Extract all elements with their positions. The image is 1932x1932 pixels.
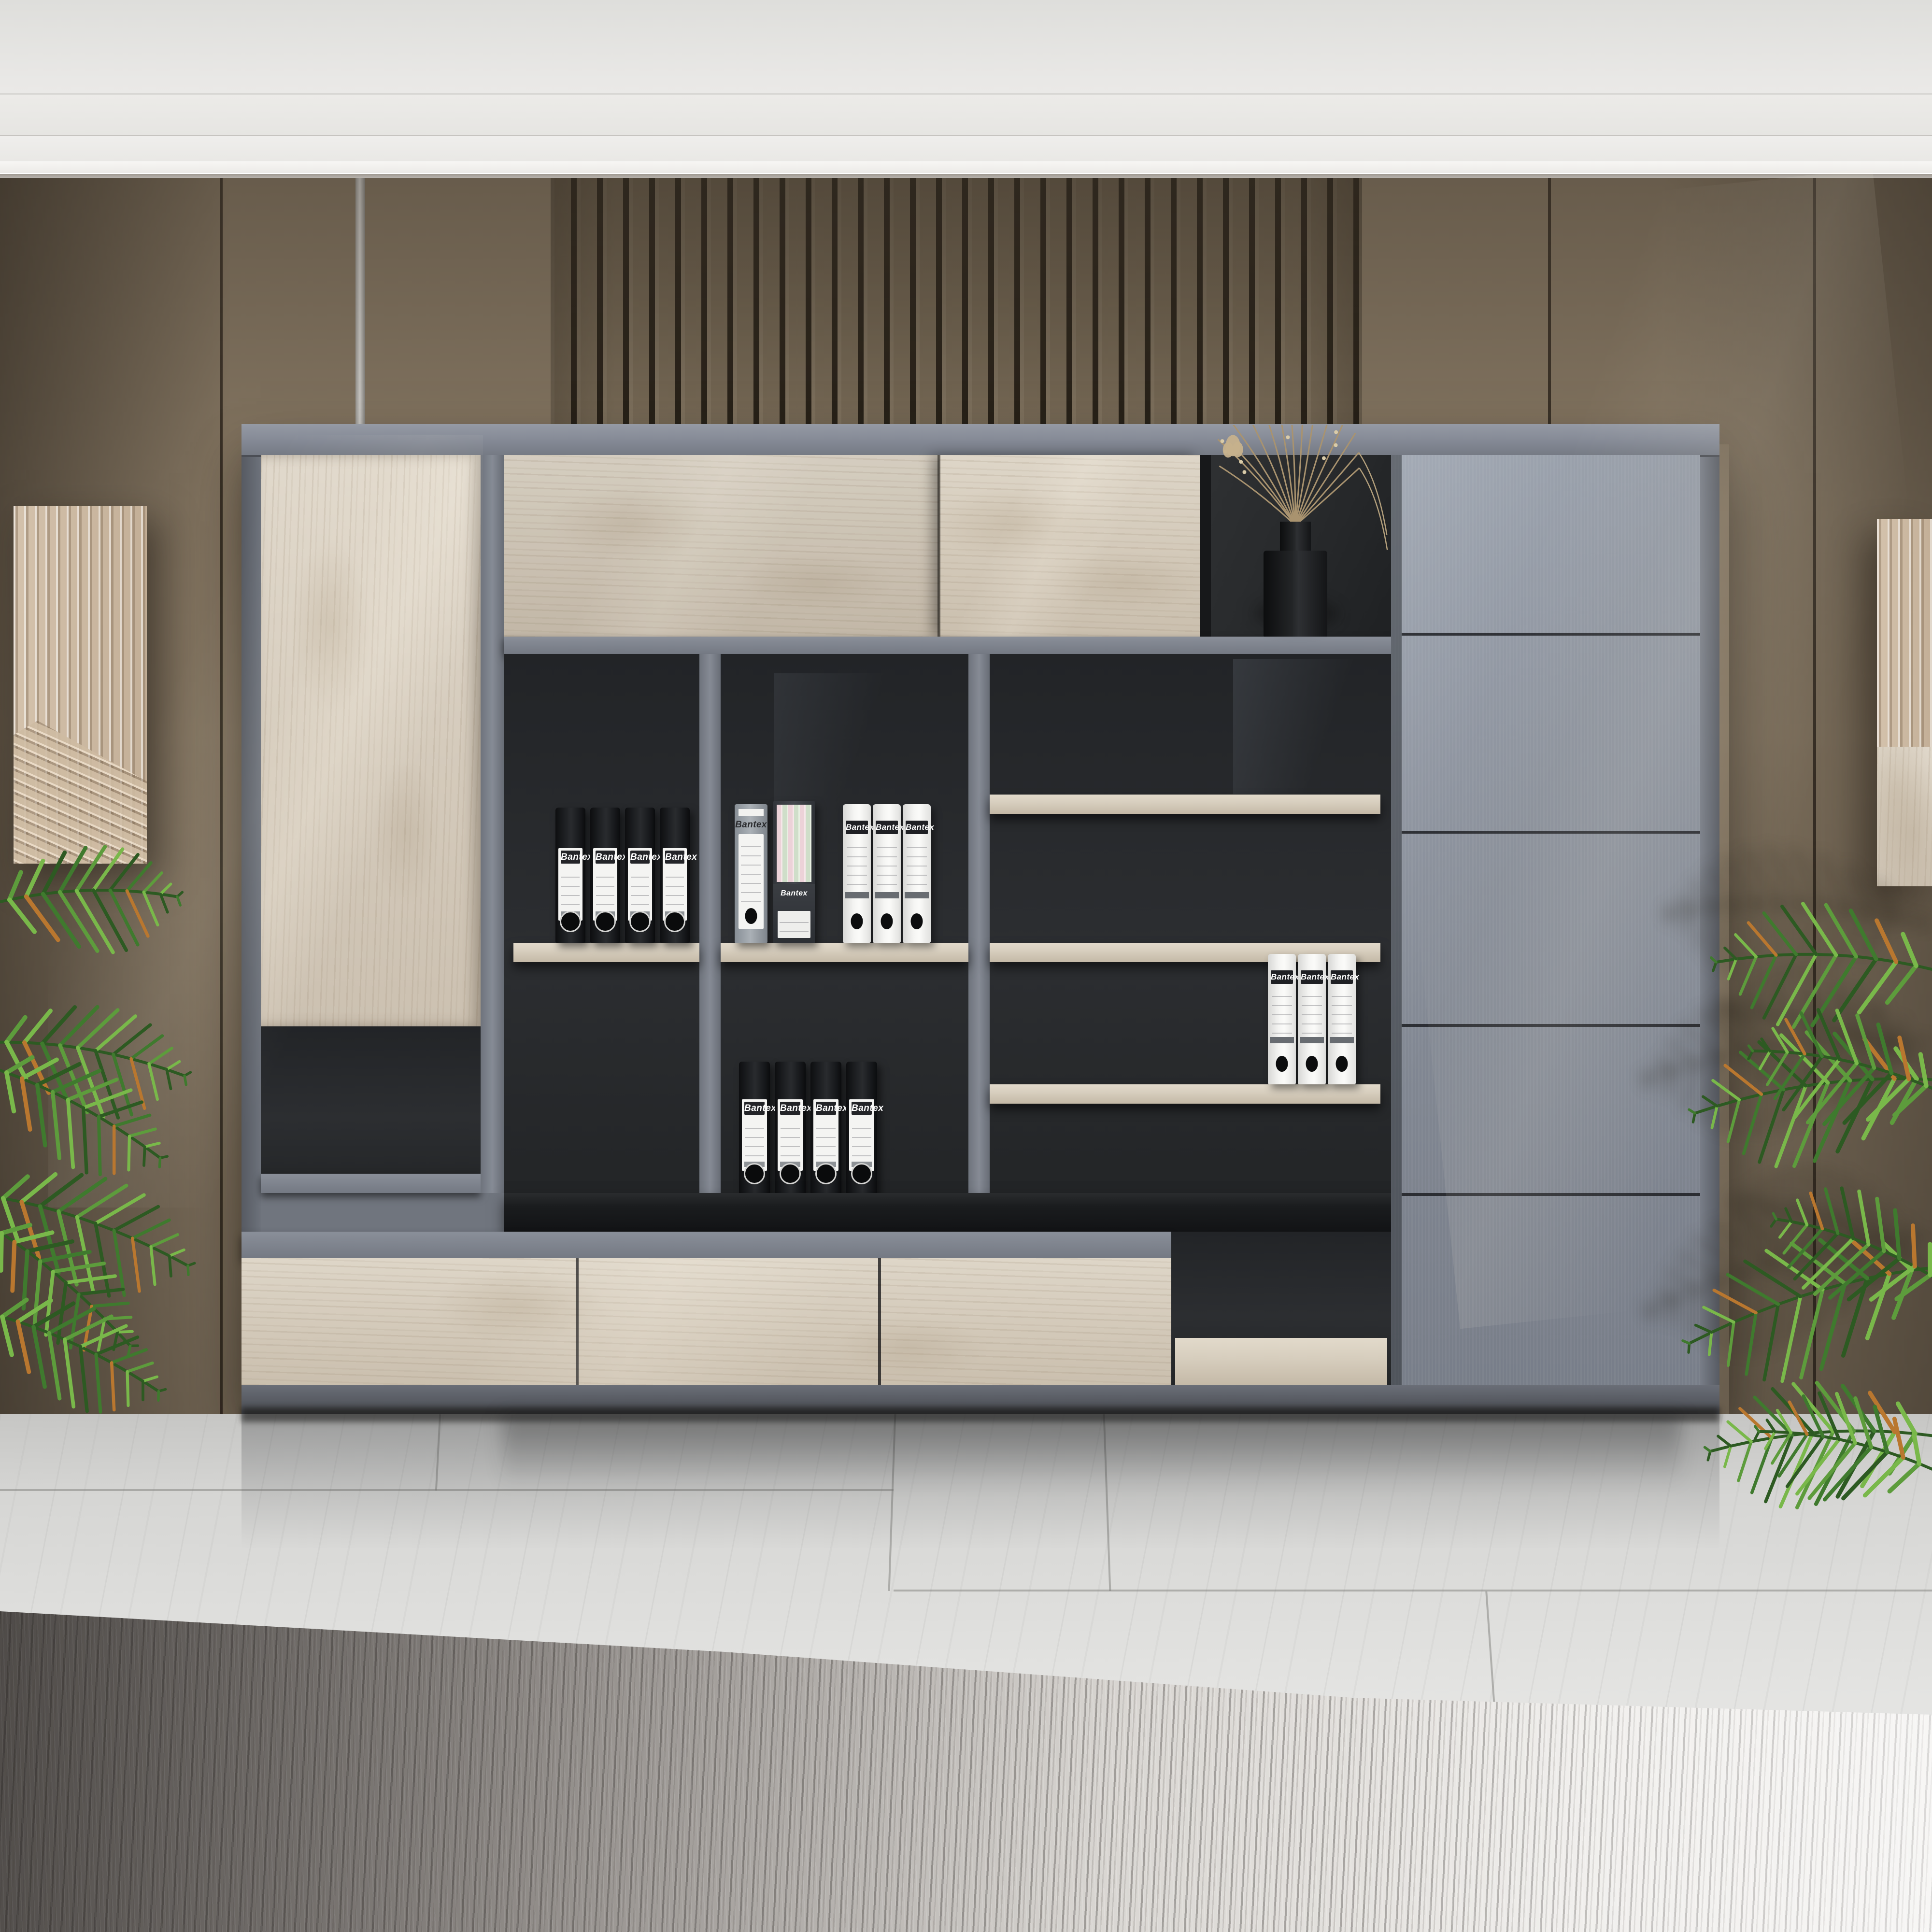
binder-label: Bantex bbox=[593, 848, 617, 921]
finger-hole bbox=[1306, 1056, 1318, 1072]
label-lines bbox=[1302, 988, 1322, 1034]
label-lines bbox=[561, 868, 580, 907]
drawer-bank-top bbox=[241, 1232, 1171, 1258]
label-lines bbox=[666, 868, 684, 907]
brand-logo: Bantex bbox=[846, 821, 868, 834]
label-lines bbox=[847, 839, 867, 889]
label-lines bbox=[852, 1120, 871, 1158]
magazine-file-front: Bantex bbox=[773, 884, 815, 943]
binder-label: Bantex bbox=[849, 1099, 874, 1171]
frame-divider bbox=[481, 455, 504, 1193]
finger-ring bbox=[664, 911, 685, 932]
binder-label: Bantex bbox=[628, 848, 652, 921]
label-lines bbox=[877, 839, 897, 889]
finger-hole bbox=[851, 913, 863, 929]
drawer-sheen bbox=[241, 1258, 1171, 1385]
binder-black: Bantex bbox=[775, 1062, 806, 1195]
label-lines bbox=[907, 839, 927, 889]
spine-stripe bbox=[1330, 1037, 1354, 1043]
file-box-top-strip bbox=[739, 809, 764, 816]
spine-stripe bbox=[905, 892, 929, 898]
spine-stripe bbox=[875, 892, 899, 898]
brand-logo: Bantex bbox=[906, 821, 928, 834]
label-lines bbox=[596, 868, 614, 907]
binder-black: Bantex bbox=[590, 808, 620, 943]
binder-black: Bantex bbox=[739, 1062, 770, 1195]
finger-ring bbox=[744, 1163, 765, 1184]
brand-logo: Bantex bbox=[852, 1102, 872, 1115]
brand-logo: Bantex bbox=[1271, 970, 1293, 984]
brand-logo: Bantex bbox=[596, 851, 615, 864]
reflection-sheen bbox=[1233, 659, 1388, 794]
magazine-file: Bantex bbox=[773, 801, 815, 943]
floor-reflection-dark bbox=[502, 1414, 1681, 1487]
label-lines bbox=[741, 838, 761, 902]
finger-ring bbox=[629, 911, 651, 932]
open-compartment-bottom bbox=[1171, 1232, 1391, 1385]
drawer-fronts bbox=[241, 1258, 1171, 1385]
binder-white: Bantex bbox=[1328, 954, 1356, 1084]
office-interior-scene: Bantex Bantex Bantex Bantex bbox=[0, 0, 1932, 1932]
finger-hole bbox=[1276, 1056, 1288, 1072]
label-lines bbox=[816, 1120, 836, 1158]
binder-label: Bantex bbox=[742, 1099, 767, 1171]
magazine-file-label bbox=[778, 911, 810, 938]
file-box-label bbox=[739, 834, 764, 929]
crown-molding-step bbox=[0, 136, 1932, 161]
bay-divider bbox=[968, 654, 990, 1193]
binder-white: Bantex bbox=[1268, 954, 1296, 1084]
brand-logo: Bantex bbox=[735, 819, 767, 831]
finger-hole bbox=[745, 908, 757, 924]
label-lines bbox=[781, 1120, 800, 1158]
door-seam bbox=[938, 455, 940, 637]
finger-ring bbox=[560, 911, 581, 932]
binder-black: Bantex bbox=[660, 808, 690, 943]
label-lines bbox=[780, 914, 809, 935]
brand-logo: Bantex bbox=[561, 851, 580, 864]
wood-shelf bbox=[990, 795, 1380, 814]
label-lines bbox=[631, 868, 649, 907]
wood-shelf bbox=[513, 943, 699, 962]
spine-stripe bbox=[1300, 1037, 1324, 1043]
label-lines bbox=[1272, 988, 1292, 1034]
crown-molding-step bbox=[0, 95, 1932, 136]
binder-black: Bantex bbox=[810, 1062, 841, 1195]
spine-stripe bbox=[845, 892, 869, 898]
brand-logo: Bantex bbox=[780, 1102, 800, 1115]
crown-molding-fascia bbox=[0, 161, 1932, 174]
spine-stripe bbox=[1270, 1037, 1294, 1043]
door-sheen bbox=[504, 455, 939, 637]
brand-logo: Bantex bbox=[744, 1102, 765, 1115]
brand-logo: Bantex bbox=[876, 821, 898, 834]
bay-divider bbox=[699, 654, 721, 1193]
binder-white: Bantex bbox=[873, 804, 901, 943]
binder-label: Bantex bbox=[663, 848, 687, 921]
brand-logo: Bantex bbox=[773, 890, 815, 897]
wood-shelf bbox=[721, 943, 968, 962]
binder-black: Bantex bbox=[625, 808, 655, 943]
brand-logo: Bantex bbox=[1301, 970, 1323, 984]
door-sheen bbox=[939, 455, 1200, 637]
binder-white: Bantex bbox=[903, 804, 931, 943]
binder-black: Bantex bbox=[555, 808, 585, 943]
brand-logo: Bantex bbox=[1331, 970, 1353, 984]
sliding-door-left bbox=[504, 455, 939, 637]
brand-logo: Bantex bbox=[665, 851, 684, 864]
vase-neck bbox=[1280, 522, 1311, 554]
finger-hole bbox=[881, 913, 893, 929]
finger-ring bbox=[851, 1163, 872, 1184]
finger-hole bbox=[911, 913, 923, 929]
shelf-band bbox=[504, 637, 1391, 654]
sliding-door-right bbox=[939, 455, 1200, 637]
binder-label: Bantex bbox=[558, 848, 582, 921]
wood-shelf bbox=[990, 1084, 1380, 1104]
finger-ring bbox=[815, 1163, 837, 1184]
finger-hole bbox=[1336, 1056, 1348, 1072]
palm-plant-left bbox=[0, 792, 251, 1420]
palm-plant-right bbox=[1642, 831, 1932, 1584]
vase bbox=[1264, 551, 1327, 637]
finger-ring bbox=[780, 1163, 801, 1184]
label-lines bbox=[1332, 988, 1352, 1034]
binder-white: Bantex bbox=[1298, 954, 1326, 1084]
binder-label: Bantex bbox=[778, 1099, 803, 1171]
binder-white: Bantex bbox=[843, 804, 871, 943]
label-lines bbox=[745, 1120, 764, 1158]
brand-logo: Bantex bbox=[630, 851, 650, 864]
finger-ring bbox=[595, 911, 616, 932]
compartment-wood-base bbox=[1175, 1338, 1387, 1385]
folder-stack bbox=[777, 805, 811, 882]
file-box: Bantex bbox=[735, 804, 767, 943]
binder-label: Bantex bbox=[813, 1099, 838, 1171]
binder-black: Bantex bbox=[846, 1062, 877, 1195]
tile-seam bbox=[894, 1590, 1932, 1591]
brand-logo: Bantex bbox=[816, 1102, 836, 1115]
